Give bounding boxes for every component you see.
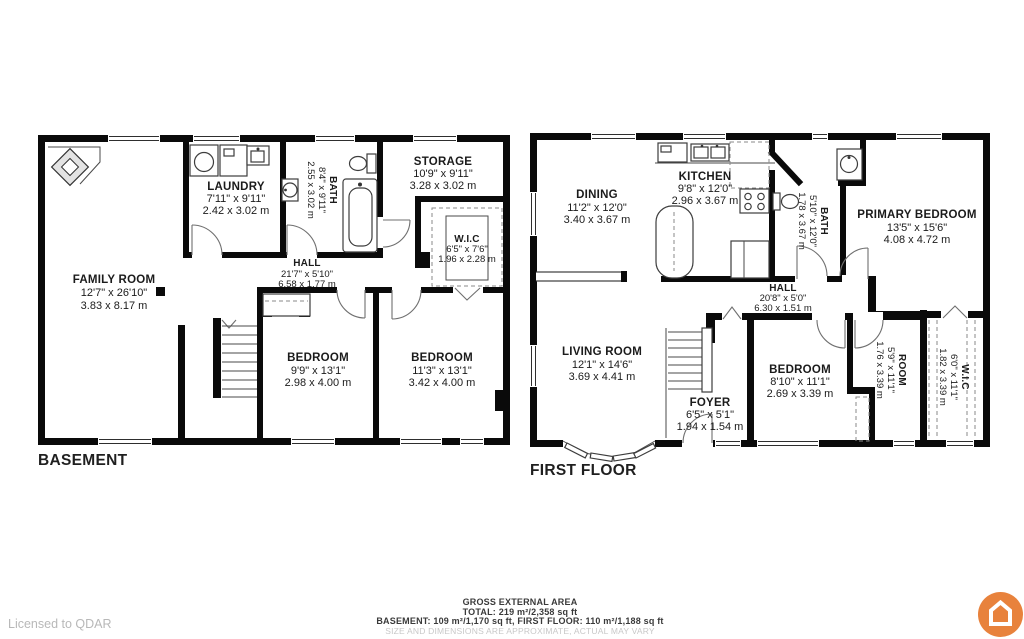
room-label-bath-first-floor: BATH 5'10" x 12'0" 1.78 x 3.67 m [796, 192, 829, 250]
room-label-kitchen: KITCHEN 9'8" x 12'0" 2.96 x 3.67 m [672, 171, 739, 207]
svg-text:11'3" x 13'1": 11'3" x 13'1" [412, 365, 472, 377]
toilet-tank-icon [773, 193, 780, 210]
svg-text:2.98 x 4.00 m: 2.98 x 4.00 m [285, 377, 352, 389]
room-label-storage: STORAGE 10'9" x 9'11" 3.28 x 3.02 m [410, 156, 477, 192]
logo-circle [978, 592, 1023, 637]
stove-icon [740, 189, 769, 213]
area-disclaimer: SIZE AND DIMENSIONS ARE APPROXIMATE, ACT… [290, 627, 750, 637]
svg-text:2.69 x 3.39 m: 2.69 x 3.39 m [767, 388, 834, 400]
area-summary: GROSS EXTERNAL AREA TOTAL: 219 m²/2,358 … [290, 598, 750, 636]
svg-text:7'11" x 9'11": 7'11" x 9'11" [207, 193, 266, 205]
svg-text:2.96 x 3.67 m: 2.96 x 3.67 m [672, 195, 739, 207]
svg-text:PRIMARY BEDROOM: PRIMARY BEDROOM [857, 209, 976, 221]
svg-text:4.08 x 4.72 m: 4.08 x 4.72 m [884, 234, 951, 246]
basement-stairs [222, 326, 257, 397]
room-label-dining: DINING 11'2" x 12'0" 3.40 x 3.67 m [564, 189, 631, 226]
svg-text:DINING: DINING [576, 189, 618, 201]
room-label-laundry: LAUNDRY 7'11" x 9'11" 2.42 x 3.02 m [203, 181, 270, 217]
floorplan-page: FAMILY ROOM 12'7" x 26'10" 3.83 x 8.17 m… [0, 0, 1024, 639]
svg-text:1.82 x 3.39 m: 1.82 x 3.39 m [937, 348, 948, 406]
svg-text:STORAGE: STORAGE [414, 156, 472, 168]
basement-plan: FAMILY ROOM 12'7" x 26'10" 3.83 x 8.17 m… [38, 135, 510, 469]
svg-text:13'5" x 15'6": 13'5" x 15'6" [887, 222, 947, 234]
svg-text:2.42 x 3.02 m: 2.42 x 3.02 m [203, 205, 270, 217]
svg-text:9'9" x 13'1": 9'9" x 13'1" [291, 365, 345, 377]
svg-text:5'10" x 12'0": 5'10" x 12'0" [807, 195, 818, 247]
svg-text:6.30 x 1.51 m: 6.30 x 1.51 m [754, 303, 812, 314]
svg-text:BATH: BATH [327, 176, 338, 204]
lower-cabinet [731, 241, 769, 278]
svg-text:1.76 x 3.39 m: 1.76 x 3.39 m [874, 341, 885, 399]
toilet-icon [782, 195, 799, 209]
svg-text:6'0" x 11'1": 6'0" x 11'1" [948, 354, 959, 400]
first-floor-walls [530, 133, 990, 447]
svg-text:12'1" x 14'6": 12'1" x 14'6" [572, 359, 632, 371]
upper-cabinets [730, 142, 769, 188]
svg-text:BEDROOM: BEDROOM [769, 364, 831, 376]
svg-text:3.28 x 3.02 m: 3.28 x 3.02 m [410, 180, 477, 192]
svg-text:5'9" x 11'1": 5'9" x 11'1" [885, 347, 896, 393]
bedroom-closet [856, 397, 869, 441]
svg-text:BEDROOM: BEDROOM [411, 352, 473, 364]
svg-text:6.58 x 1.77 m: 6.58 x 1.77 m [278, 279, 336, 290]
svg-text:10'9" x 9'11": 10'9" x 9'11" [413, 168, 473, 180]
stair-arrow [222, 320, 236, 328]
toilet-icon [350, 157, 367, 171]
svg-text:3.42 x 4.00 m: 3.42 x 4.00 m [409, 377, 476, 389]
dining-railing [532, 272, 624, 281]
license-text: Licensed to QDAR [8, 617, 112, 631]
svg-text:12'7" x 26'10": 12'7" x 26'10" [81, 287, 148, 299]
stair-rail [702, 328, 712, 392]
svg-text:FOYER: FOYER [690, 397, 731, 409]
svg-text:HALL: HALL [293, 258, 320, 269]
svg-text:6'5" x 5'1": 6'5" x 5'1" [686, 409, 734, 421]
svg-text:2.55 x 3.02 m: 2.55 x 3.02 m [305, 161, 316, 219]
room-label-primary-bedroom: PRIMARY BEDROOM 13'5" x 15'6" 4.08 x 4.7… [857, 209, 976, 246]
first-floor-plan: DINING 11'2" x 12'0" 3.40 x 3.67 m KITCH… [530, 133, 990, 479]
svg-text:FAMILY ROOM: FAMILY ROOM [73, 274, 156, 286]
floorplan-canvas: FAMILY ROOM 12'7" x 26'10" 3.83 x 8.17 m… [0, 0, 1024, 639]
brand-logo [977, 591, 1024, 638]
room-label-foyer: FOYER 6'5" x 5'1" 1.94 x 1.54 m [677, 397, 744, 433]
room-label-wic-first-floor: W.I.C 6'0" x 11'1" 1.82 x 3.39 m [937, 348, 970, 406]
room-label-bath-basement: BATH 8'4" x 9'11" 2.55 x 3.02 m [305, 161, 338, 219]
room-label-bedroom-3: BEDROOM 8'10" x 11'1" 2.69 x 3.39 m [767, 364, 834, 400]
room-label-living-room: LIVING ROOM 12'1" x 14'6" 3.69 x 4.41 m [562, 346, 642, 383]
svg-text:LAUNDRY: LAUNDRY [207, 181, 265, 193]
svg-text:BATH: BATH [818, 207, 829, 235]
room-label-wic-basement: W.I.C 6'5" x 7'6" 1.96 x 2.28 m [438, 234, 496, 265]
svg-text:1.96 x 2.28 m: 1.96 x 2.28 m [438, 254, 496, 265]
closet [263, 294, 310, 316]
svg-text:8'4" x 9'11": 8'4" x 9'11" [316, 167, 327, 213]
svg-text:11'2" x 12'0": 11'2" x 12'0" [567, 202, 627, 214]
svg-text:1.78 x 3.67 m: 1.78 x 3.67 m [796, 192, 807, 250]
svg-text:W.I.C: W.I.C [959, 364, 970, 389]
basement-doors [192, 220, 480, 328]
svg-text:8'10" x 11'1": 8'10" x 11'1" [770, 376, 830, 388]
basement-title: BASEMENT [38, 452, 128, 469]
room-label-hall-first-floor: HALL 20'8" x 5'0" 6.30 x 1.51 m [754, 283, 812, 314]
first-floor-title: FIRST FLOOR [530, 462, 637, 479]
room-label-hall-basement: HALL 21'7" x 5'10" 6.58 x 1.77 m [278, 258, 336, 290]
room-label-bedroom-1: BEDROOM 9'9" x 13'1" 2.98 x 4.00 m [285, 352, 352, 389]
room-label-room: ROOM 5'9" x 11'1" 1.76 x 3.39 m [874, 341, 907, 399]
svg-text:KITCHEN: KITCHEN [679, 171, 732, 183]
svg-text:3.83 x 8.17 m: 3.83 x 8.17 m [81, 300, 148, 312]
svg-text:LIVING ROOM: LIVING ROOM [562, 346, 642, 358]
svg-text:3.40 x 3.67 m: 3.40 x 3.67 m [564, 214, 631, 226]
svg-text:3.69 x 4.41 m: 3.69 x 4.41 m [569, 371, 636, 383]
toilet-tank-icon [367, 154, 376, 173]
svg-text:1.94 x 1.54 m: 1.94 x 1.54 m [677, 421, 744, 433]
svg-text:ROOM: ROOM [896, 354, 907, 386]
fireplace-icon [52, 149, 89, 186]
svg-text:9'8" x 12'0": 9'8" x 12'0" [678, 183, 732, 195]
svg-text:BEDROOM: BEDROOM [287, 352, 349, 364]
room-label-family-room: FAMILY ROOM 12'7" x 26'10" 3.83 x 8.17 m [73, 274, 156, 312]
room-label-bedroom-2: BEDROOM 11'3" x 13'1" 3.42 x 4.00 m [409, 352, 476, 389]
